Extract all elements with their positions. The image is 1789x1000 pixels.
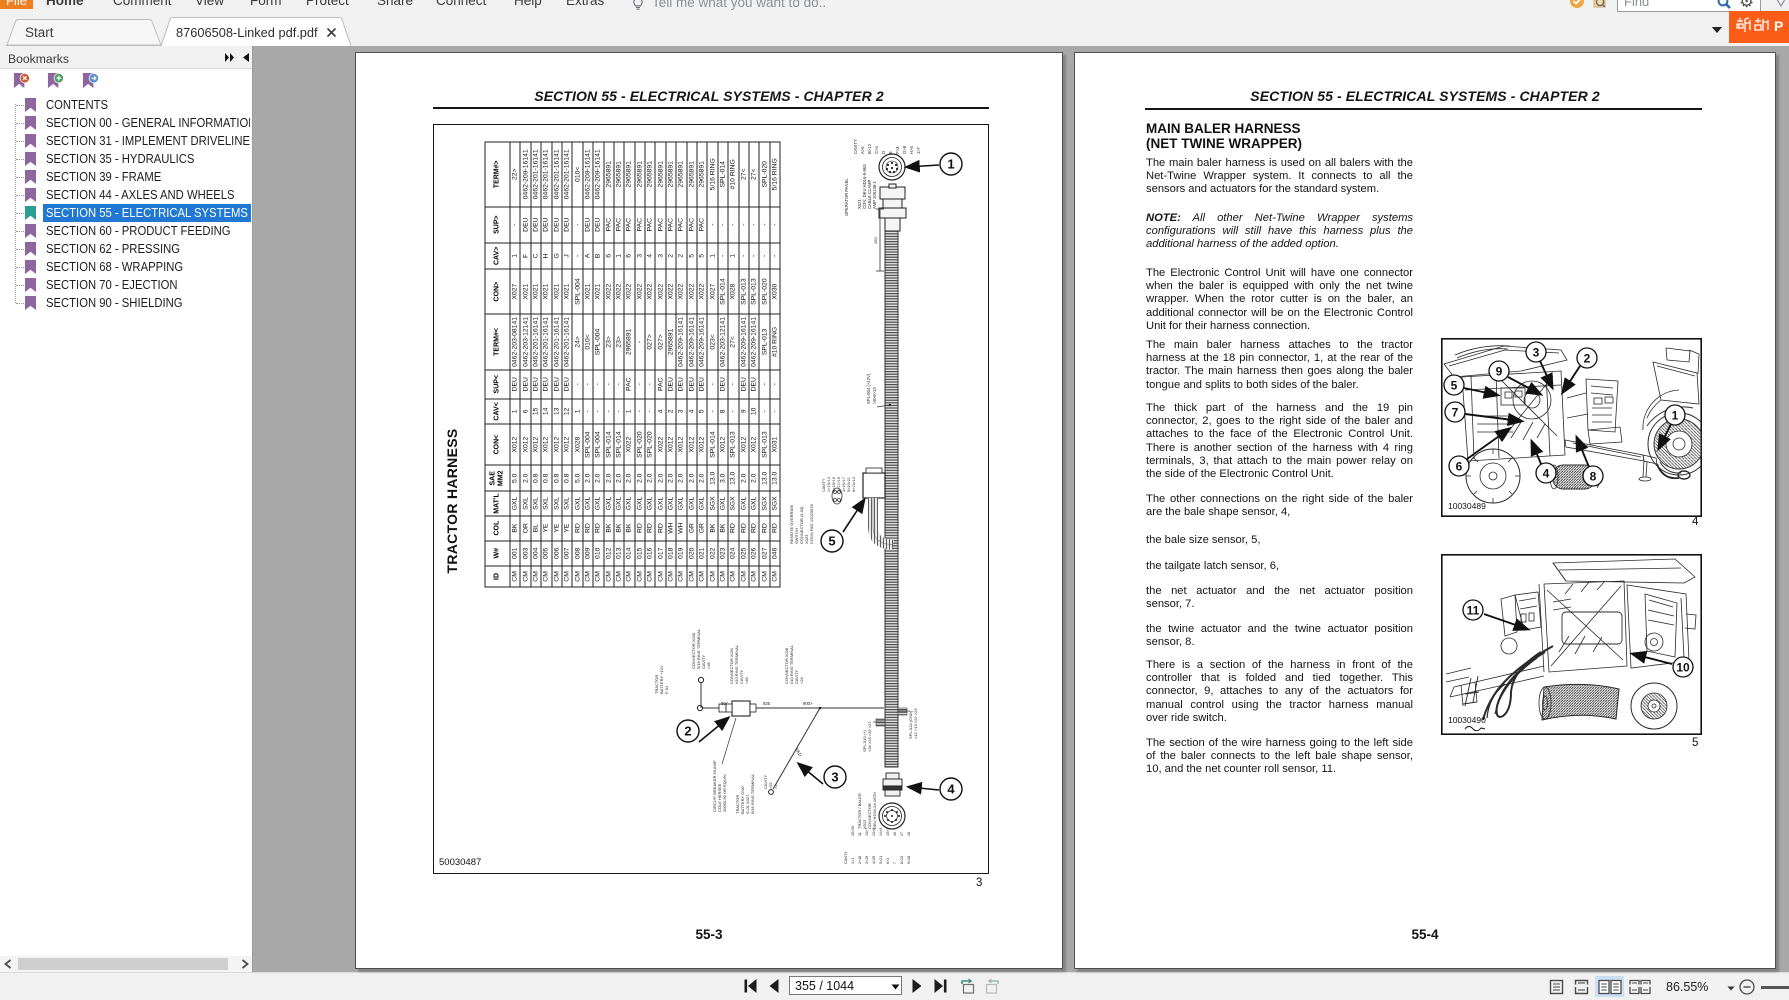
svg-text:AMP 206138-1: AMP 206138-1 (872, 180, 877, 209)
svg-text:925: 925 (763, 701, 771, 706)
svg-text:5>20>21: 5>20>21 (847, 477, 851, 492)
svg-text:15>26: 15>26 (851, 826, 855, 836)
svg-text:7: 7 (1452, 406, 1459, 420)
svg-text:10: 10 (1676, 661, 1690, 675)
svg-text:10030490: 10030490 (1448, 715, 1486, 725)
svg-text:1>13>14: 1>13>14 (827, 477, 831, 492)
svg-text:16: 16 (893, 832, 897, 836)
svg-text:2: 2 (684, 724, 691, 739)
svg-text:7: 7 (893, 862, 897, 864)
svg-text:30055-50 OR EQUIV.: 30055-50 OR EQUIV. (722, 774, 727, 812)
svg-text:DEU HD34-24-16SN: DEU HD34-24-16SN (872, 792, 877, 829)
svg-text:SPL-004 (+12V): SPL-004 (+12V) (866, 373, 871, 404)
svg-text:4>16>17: 4>16>17 (842, 477, 846, 492)
svg-text:13>7: 13>7 (865, 828, 869, 836)
svg-text:50030487: 50030487 (439, 857, 481, 868)
svg-text:B>12: B>12 (867, 143, 872, 154)
svg-text:18: 18 (907, 832, 911, 836)
svg-text:17: 17 (900, 832, 904, 836)
svg-text:F>3: F>3 (895, 146, 900, 154)
svg-text:900>: 900> (803, 701, 813, 706)
svg-text:2: 2 (1584, 352, 1591, 366)
svg-text:P: P (1774, 18, 1783, 34)
svg-text:3>19: 3>19 (865, 856, 869, 864)
svg-text:C>4: C>4 (874, 146, 879, 154)
svg-text:3: 3 (1533, 346, 1540, 360)
svg-text:>24: >24 (799, 676, 804, 684)
svg-text:>8>9>13: >8>9>13 (872, 387, 877, 404)
svg-text:>12 >13 >22 >23: >12 >13 >22 >23 (913, 708, 918, 739)
svg-text:CAVITY: CAVITY (844, 851, 848, 864)
svg-text:J>7: J>7 (916, 146, 921, 154)
svg-text:10030489: 10030489 (1448, 501, 1486, 511)
svg-text:E: E (888, 151, 893, 154)
svg-text:<34 >25 >26 >27: <34 >25 >26 >27 (867, 721, 872, 752)
svg-text:CAVITY: CAVITY (853, 139, 858, 154)
svg-text:5: 5 (828, 534, 835, 549)
svg-text:RED: RED (794, 747, 803, 757)
svg-text:1: 1 (1672, 409, 1679, 423)
svg-text:4>25: 4>25 (872, 856, 876, 864)
svg-text:6>3: 6>3 (886, 858, 890, 864)
svg-text:5>21: 5>21 (879, 856, 883, 864)
svg-text:OPERATOR PANEL: OPERATOR PANEL (844, 178, 849, 216)
svg-text:4: 4 (947, 782, 955, 797)
svg-text:3: 3 (831, 770, 838, 785)
svg-text:>46: >46 (706, 661, 711, 669)
svg-text:5: 5 (1451, 379, 1458, 393)
svg-text:11: 11 (1467, 604, 1480, 618)
svg-text:1: 1 (947, 157, 954, 172)
svg-text:CAVITY: CAVITY (822, 478, 826, 492)
svg-text:8: 8 (1590, 470, 1597, 484)
svg-text:<46: <46 (744, 676, 749, 684)
svg-text:H>5: H>5 (909, 146, 914, 154)
svg-text:4: 4 (1543, 467, 1550, 481)
svg-text:CONN PAC 12020978: CONN PAC 12020978 (809, 504, 814, 545)
svg-text:13>8: 13>8 (872, 828, 876, 836)
svg-text:8>23: 8>23 (900, 856, 904, 864)
svg-text:F-01: F-01 (664, 685, 669, 694)
svg-text:150: 150 (873, 237, 878, 244)
svg-text:2>18: 2>18 (858, 856, 862, 864)
svg-text:1>1: 1>1 (851, 858, 855, 864)
svg-text:9: 9 (1496, 365, 1503, 379)
svg-text:5/16 RING TERMINAL: 5/16 RING TERMINAL (750, 773, 755, 814)
svg-text:6: 6 (1456, 460, 1463, 474)
svg-text:A>6: A>6 (860, 146, 865, 154)
svg-text:6>14>12: 6>14>12 (852, 477, 856, 492)
svg-text:14>9: 14>9 (879, 828, 883, 836)
svg-text:11: 11 (858, 832, 862, 836)
svg-text:D: D (881, 151, 886, 154)
svg-text:15>4: 15>4 (886, 828, 890, 836)
svg-text:G>8: G>8 (902, 145, 907, 154)
svg-text:9>28: 9>28 (907, 856, 911, 864)
